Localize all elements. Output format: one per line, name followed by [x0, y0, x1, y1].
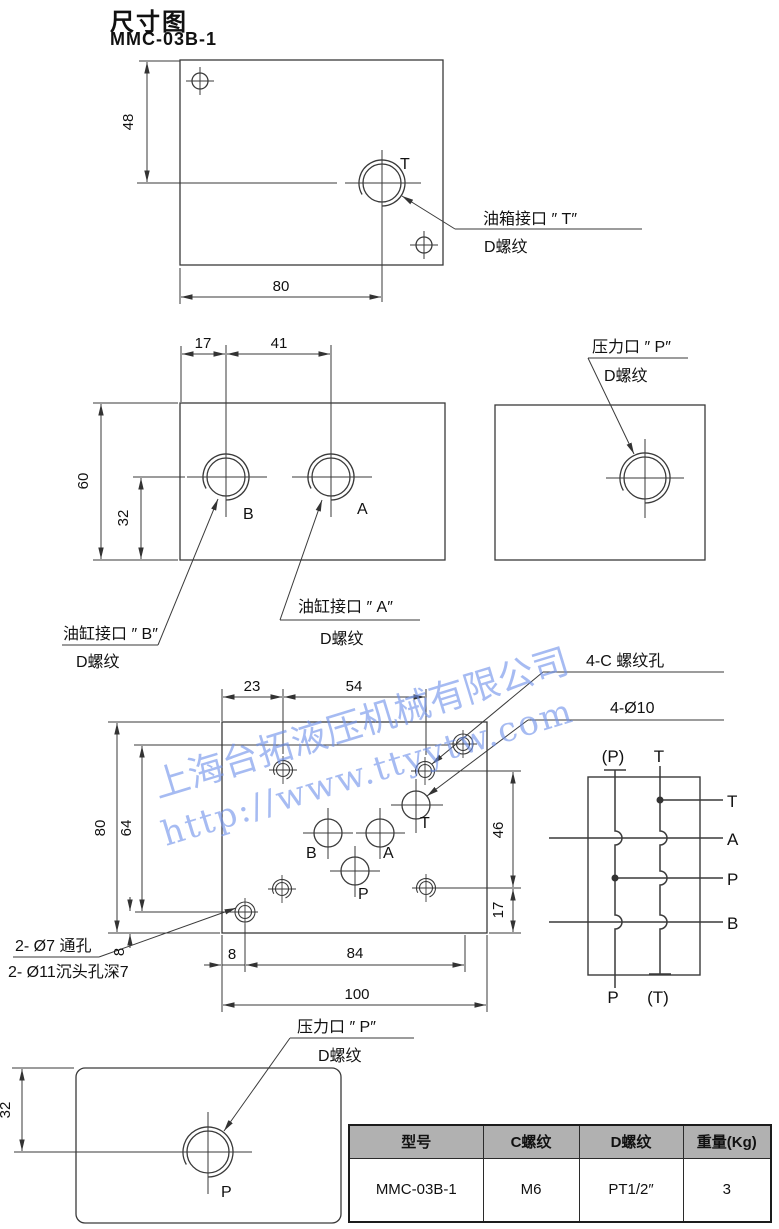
cylinder-port-a-annotation: 油缸接口 ″ A″ [298, 597, 393, 616]
mount-p-label: P [358, 886, 369, 903]
side-view [495, 358, 705, 560]
mount-t-label: T [420, 815, 430, 832]
a-port-label: A [357, 501, 368, 518]
cell-model: MMC-03B-1 [349, 1158, 483, 1222]
tank-port-annotation: 油箱接口 ″ T″ [483, 210, 577, 228]
pressure-port-annotation-bottom: 压力口 ″ P″ [297, 1018, 376, 1036]
pressure-port-annotation-side: 压力口 ″ P″ [592, 338, 671, 356]
dim-32-bottom [12, 1068, 74, 1151]
dim-48-label: 48 [120, 114, 137, 131]
p-port-hole-bottom [14, 1112, 252, 1194]
dim-32-bottom-label: 32 [0, 1102, 14, 1119]
dim-41-label: 41 [271, 335, 288, 352]
schematic-right-b-label: B [727, 914, 738, 933]
schematic-top-right-label: T [654, 747, 664, 766]
dim-60-label: 60 [75, 473, 92, 490]
dim-32 [133, 477, 185, 559]
junction-dot-p [612, 875, 619, 882]
schematic-box [588, 777, 700, 975]
dim-46-17 [439, 771, 521, 933]
dim-8h-label: 8 [228, 946, 236, 963]
dim-80-mount-label: 80 [92, 820, 109, 837]
dim-60 [93, 403, 178, 560]
counterbore-annotation: 2- Ø11沉头孔深7 [8, 963, 129, 981]
schematic-bottom-right-label: (T) [647, 988, 669, 1007]
schematic-port-lines [549, 800, 723, 922]
bolt-hole-bottom-right [410, 231, 438, 259]
spec-table-header-row: 型号 C螺纹 D螺纹 重量(Kg) [349, 1125, 771, 1158]
cthread-annotation: 4-C 螺纹孔 [586, 652, 664, 670]
dimension-drawing-page: 尺寸图 MMC-03B-1 [0, 0, 779, 1229]
header-weight: 重量(Kg) [683, 1125, 771, 1158]
dim-100-label: 100 [344, 986, 369, 1003]
junction-dot-t [657, 797, 664, 804]
cylinder-port-a-thread-note: D螺纹 [320, 630, 364, 648]
schematic-right-t-label: T [727, 792, 737, 811]
cell-weight: 3 [683, 1158, 771, 1222]
d10-annotation: 4-Ø10 [610, 700, 655, 717]
schematic-top-left-label: (P) [602, 747, 625, 766]
side-view-plate-outline [495, 405, 705, 560]
dim-8v-label: 8 [111, 948, 128, 956]
dim-48 [139, 61, 180, 182]
b-port-leader [62, 499, 218, 645]
dim-32-label: 32 [115, 510, 132, 527]
p-port-hole [606, 439, 684, 518]
schematic-bottom-left-label: P [607, 988, 618, 1007]
p-port-bottom-label: P [221, 1184, 232, 1201]
schematic-right-a-label: A [727, 830, 739, 849]
header-model: 型号 [349, 1125, 483, 1158]
dim-54-label: 54 [346, 678, 363, 695]
spec-table-data-row: MMC-03B-1 M6 PT1/2″ 3 [349, 1158, 771, 1222]
tank-port-thread-note: D螺纹 [484, 238, 528, 256]
through-hole-annotation: 2- Ø7 通孔 [15, 937, 91, 955]
pressure-port-thread-note-side: D螺纹 [604, 367, 648, 385]
dim-84-label: 84 [347, 945, 364, 962]
dim-17-41 [181, 346, 330, 402]
t-port-label: T [400, 156, 410, 173]
dim-46-label: 46 [490, 822, 507, 839]
dim-23-label: 23 [244, 678, 261, 695]
b-port-hole [187, 345, 267, 517]
hydraulic-schematic [549, 766, 723, 988]
mount-b-label: B [306, 845, 317, 862]
mount-a-label: A [383, 845, 394, 862]
header-d-thread: D螺纹 [579, 1125, 683, 1158]
cell-c-thread: M6 [483, 1158, 579, 1222]
a-port-hole [292, 345, 372, 517]
spec-table: 型号 C螺纹 D螺纹 重量(Kg) MMC-03B-1 M6 PT1/2″ 3 [348, 1124, 772, 1223]
header-c-thread: C螺纹 [483, 1125, 579, 1158]
dim-64-label: 64 [118, 820, 135, 837]
drawing-canvas: 48 80 T 油箱接口 ″ T″ D螺纹 [0, 0, 779, 1229]
cylinder-port-b-thread-note: D螺纹 [76, 653, 120, 671]
dim-17-label: 17 [195, 335, 212, 352]
top-view [137, 60, 642, 304]
dim-80-label: 80 [273, 278, 290, 295]
schematic-right-p-label: P [727, 870, 738, 889]
pressure-port-thread-note-bottom: D螺纹 [318, 1047, 362, 1065]
cell-d-thread: PT1/2″ [579, 1158, 683, 1222]
model-number: MMC-03B-1 [110, 29, 217, 50]
dim-17-mount-label: 17 [490, 902, 507, 919]
bolt-hole-top-left [186, 67, 214, 95]
b-port-label: B [243, 506, 254, 523]
cylinder-port-b-annotation: 油缸接口 ″ B″ [63, 624, 158, 643]
watermark: 上海台拓液压机械有限公司 http://www.ttyytw.com [149, 641, 579, 855]
